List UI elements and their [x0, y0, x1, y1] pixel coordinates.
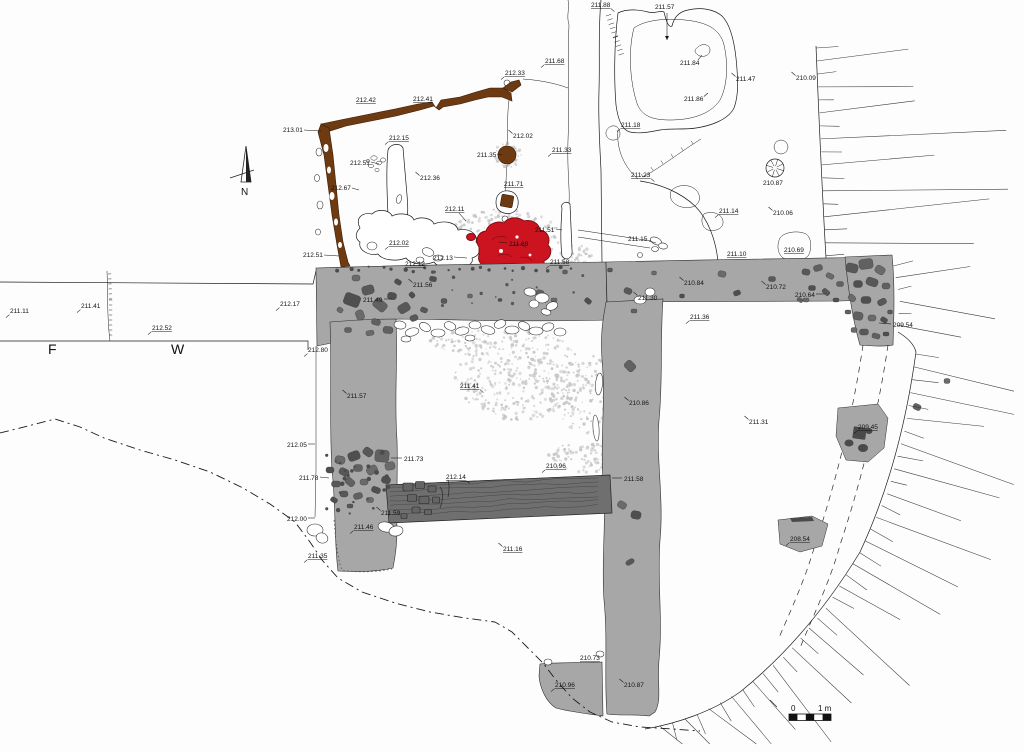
- elevation-label: 211.41: [460, 383, 480, 390]
- elevation-label: 211.69: [509, 241, 529, 248]
- elevation-label: 212.33: [505, 70, 525, 77]
- patch-stone: [845, 440, 854, 447]
- site-plan: N 0 1 m 213.01212.42212.41212.33211.6821…: [0, 0, 1024, 752]
- pit-small-hole: [695, 45, 710, 57]
- pebble: [367, 242, 377, 250]
- feature-blob-b: [702, 212, 723, 230]
- elevation-label: 212.67: [331, 185, 351, 192]
- elevation-label: 212.41: [413, 96, 433, 103]
- elevation-label: 211.31: [749, 419, 769, 426]
- scale-tick: [770, 700, 777, 707]
- posthole-spoked: [766, 159, 784, 177]
- elevation-label: 211.11: [10, 308, 29, 315]
- beam-hole: [334, 219, 338, 226]
- elevation-label: 212.00: [287, 516, 307, 523]
- pit-inner-outline: [630, 19, 726, 120]
- elevation-label: 211.33: [552, 147, 572, 154]
- elevation-label: 210.73: [580, 655, 600, 662]
- elevation-label: 211.49: [363, 297, 383, 304]
- scale-bar-seg: [823, 714, 831, 721]
- elevation-label: 211.58: [550, 259, 570, 266]
- elevation-label: 209.54: [893, 322, 913, 329]
- elevation-label: 211.16: [503, 546, 523, 553]
- elevation-labels: 213.01212.42212.41212.33211.68212.02211.…: [6, 2, 913, 692]
- root-oval: [652, 247, 659, 252]
- north-label: N: [241, 187, 248, 198]
- patch-stone: [858, 444, 868, 452]
- root-oval: [658, 242, 668, 249]
- scale-one-label: 1 m: [818, 704, 832, 713]
- elevation-label: 208.54: [790, 536, 810, 543]
- beam-hole: [330, 192, 335, 200]
- top-curve-line: [523, 79, 568, 88]
- path-band-line-east: [800, 345, 888, 648]
- elevation-label: 210.87: [763, 180, 783, 187]
- pit-complex-northeast: [578, 0, 811, 263]
- elevation-label: 210.87: [624, 682, 644, 689]
- elevation-label: 211.35: [477, 152, 497, 159]
- scale-bar-seg: [806, 714, 814, 721]
- slope-path-band: [778, 345, 888, 648]
- elevation-label: 211.73: [404, 456, 424, 463]
- stone-outline: [316, 229, 321, 235]
- elevation-label: 211.30: [638, 295, 658, 302]
- elevation-label: 211.46: [354, 524, 374, 531]
- elevation-label: 210.86: [629, 400, 649, 407]
- pit-outer-outline: [615, 9, 738, 133]
- pit-slope-line: [643, 139, 701, 177]
- path-band-line-west: [778, 345, 863, 640]
- elevation-label: 211.36: [690, 314, 710, 321]
- elevation-label: 212.51: [303, 252, 323, 259]
- elevation-label: 212.13: [433, 255, 453, 262]
- band-lower-line: [0, 341, 308, 350]
- elevation-label: 211.57: [655, 4, 675, 11]
- beam-hole: [324, 144, 329, 152]
- elevation-label: 212.51: [350, 160, 370, 167]
- elevation-label: 210.72: [766, 284, 786, 291]
- elevation-label: 212.52: [152, 325, 172, 332]
- tall-narrow-feature: [561, 202, 572, 259]
- elevation-label: 211.51: [535, 227, 555, 234]
- area-letter: F: [48, 341, 57, 357]
- beam-hole: [338, 242, 342, 248]
- hearth-speck: [499, 249, 503, 253]
- hearth-speck: [515, 235, 518, 238]
- elevation-label: 212.12: [405, 261, 425, 268]
- elevation-label: 211.86: [684, 96, 704, 103]
- elevation-label: 212.42: [356, 97, 376, 104]
- elevation-label: 211.15: [628, 236, 648, 243]
- elevation-label: 212.80: [308, 347, 328, 354]
- small-circle: [638, 253, 643, 258]
- elevation-label: 209.45: [858, 424, 878, 431]
- elevation-label: 211.57: [347, 393, 367, 400]
- elevation-label: 211.88: [591, 2, 611, 9]
- stone-outline: [315, 175, 320, 182]
- stone-outline: [316, 148, 322, 156]
- north-arrow: N: [230, 146, 254, 198]
- elevation-label: 211.35: [308, 553, 328, 560]
- elevation-label: 212.14: [446, 474, 466, 481]
- elevation-label: 211.78: [299, 475, 319, 482]
- elevation-label: 211.18: [621, 122, 641, 129]
- beam-hole: [327, 167, 331, 174]
- elevation-label: 210.09: [796, 75, 816, 82]
- burnt-clay-small: [467, 234, 476, 241]
- band-upper-line: [0, 271, 316, 284]
- baulk-line: [599, 0, 602, 263]
- elevation-label: 212.02: [389, 240, 409, 247]
- wall-west: [330, 319, 397, 572]
- elevation-label: 212.15: [389, 135, 409, 142]
- elevation-label: 211.41: [81, 303, 101, 310]
- elevation-label: 213.01: [283, 127, 303, 134]
- area-letter: W: [171, 341, 185, 357]
- elevation-label: 211.59: [381, 510, 401, 517]
- trench-edge-line: [315, 346, 316, 517]
- elevation-label: 211.14: [719, 208, 739, 215]
- elevation-label: 210.06: [773, 210, 793, 217]
- elevation-label: 211.84: [680, 60, 700, 67]
- elevation-label: 212.02: [513, 133, 533, 140]
- burnt-square-a: [500, 194, 514, 208]
- hearth-speck: [529, 254, 532, 257]
- elevation-label: 212.05: [287, 442, 307, 449]
- elevation-label: 211.10: [727, 251, 747, 258]
- elevation-label: 211.58: [624, 476, 644, 483]
- stone-outline: [317, 201, 323, 209]
- elevation-label: 211.23: [631, 172, 651, 179]
- feature-blob-a: [670, 186, 699, 208]
- elevation-label: 210.69: [784, 247, 804, 254]
- elevation-label: 211.68: [545, 58, 565, 65]
- elevation-label: 210.96: [555, 682, 575, 689]
- scale-bar-seg: [789, 714, 797, 721]
- beam-horizontal: [321, 88, 512, 131]
- elevation-label: 212.17: [280, 301, 300, 308]
- scale-bar: 0 1 m: [770, 700, 832, 721]
- elevation-label: 212.36: [420, 175, 440, 182]
- scale-zero-label: 0: [791, 704, 796, 713]
- posthole-plain: [774, 140, 788, 154]
- area-letters: FW: [48, 341, 185, 357]
- wall-seam-stone: [592, 415, 600, 441]
- elevation-label: 210.64: [795, 292, 815, 299]
- site-plan-svg: N 0 1 m 213.01212.42212.41212.33211.6821…: [0, 0, 1024, 752]
- elevation-label: 211.56: [413, 282, 433, 289]
- elevation-label: 210.84: [684, 280, 704, 287]
- band-scarp-line: [107, 271, 110, 341]
- elevation-label: 212.11: [445, 206, 465, 213]
- elevation-label: 210.96: [546, 463, 566, 470]
- elevation-label: 211.71: [504, 181, 524, 188]
- trench-band: [0, 271, 316, 517]
- elevation-label: 211.47: [736, 76, 756, 83]
